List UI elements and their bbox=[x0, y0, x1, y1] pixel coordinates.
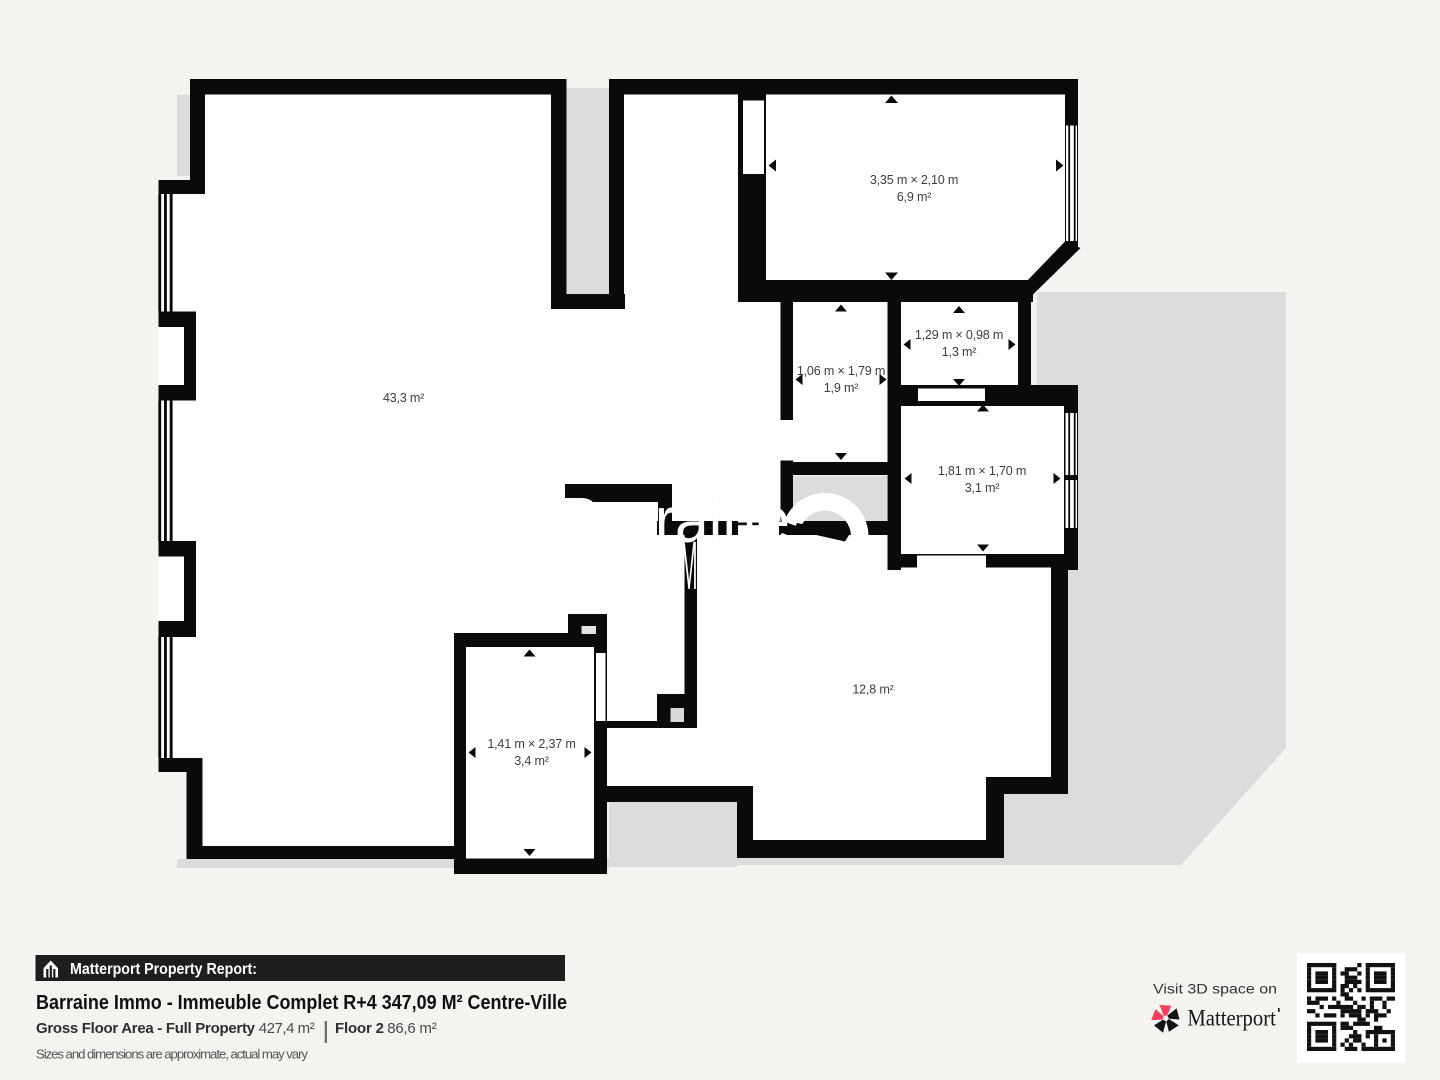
svg-text:12,8 m²: 12,8 m² bbox=[852, 683, 893, 697]
svg-text:1,06 m × 1,79 m: 1,06 m × 1,79 m bbox=[797, 364, 885, 378]
svg-text:1,81 m × 1,70 m: 1,81 m × 1,70 m bbox=[938, 464, 1026, 478]
svg-text:Floor 2: Floor 2 bbox=[335, 1020, 384, 1037]
svg-text:Matterport: Matterport bbox=[1187, 1006, 1276, 1031]
svg-text:Gross Floor Area - Full Proper: Gross Floor Area - Full Property bbox=[36, 1020, 256, 1037]
svg-text:43,3 m²: 43,3 m² bbox=[383, 391, 424, 405]
svg-text:Sizes and dimensions are appro: Sizes and dimensions are approximate, ac… bbox=[36, 1047, 308, 1062]
svg-text:3,4 m²: 3,4 m² bbox=[514, 754, 549, 768]
svg-text:6,9 m²: 6,9 m² bbox=[897, 190, 932, 204]
svg-text:1,9 m²: 1,9 m² bbox=[824, 381, 859, 395]
svg-text:427,4 m²: 427,4 m² bbox=[259, 1020, 315, 1037]
svg-text:Visit 3D space on: Visit 3D space on bbox=[1153, 982, 1277, 997]
svg-text:3,35 m × 2,10 m: 3,35 m × 2,10 m bbox=[870, 173, 958, 187]
svg-text:86,6 m²: 86,6 m² bbox=[387, 1020, 437, 1037]
svg-text:1,3 m²: 1,3 m² bbox=[942, 345, 977, 359]
svg-text:1,29 m × 0,98 m: 1,29 m × 0,98 m bbox=[915, 328, 1003, 342]
svg-text:3,1 m²: 3,1 m² bbox=[965, 481, 1000, 495]
svg-text:Barraine: Barraine bbox=[560, 484, 790, 556]
svg-text:M: M bbox=[681, 527, 698, 604]
svg-text:Barraine Immo - Immeuble Compl: Barraine Immo - Immeuble Complet R+4 347… bbox=[36, 991, 567, 1014]
svg-text:1,41 m × 2,37 m: 1,41 m × 2,37 m bbox=[487, 737, 575, 751]
svg-text:Matterport Property Report:: Matterport Property Report: bbox=[70, 961, 257, 978]
